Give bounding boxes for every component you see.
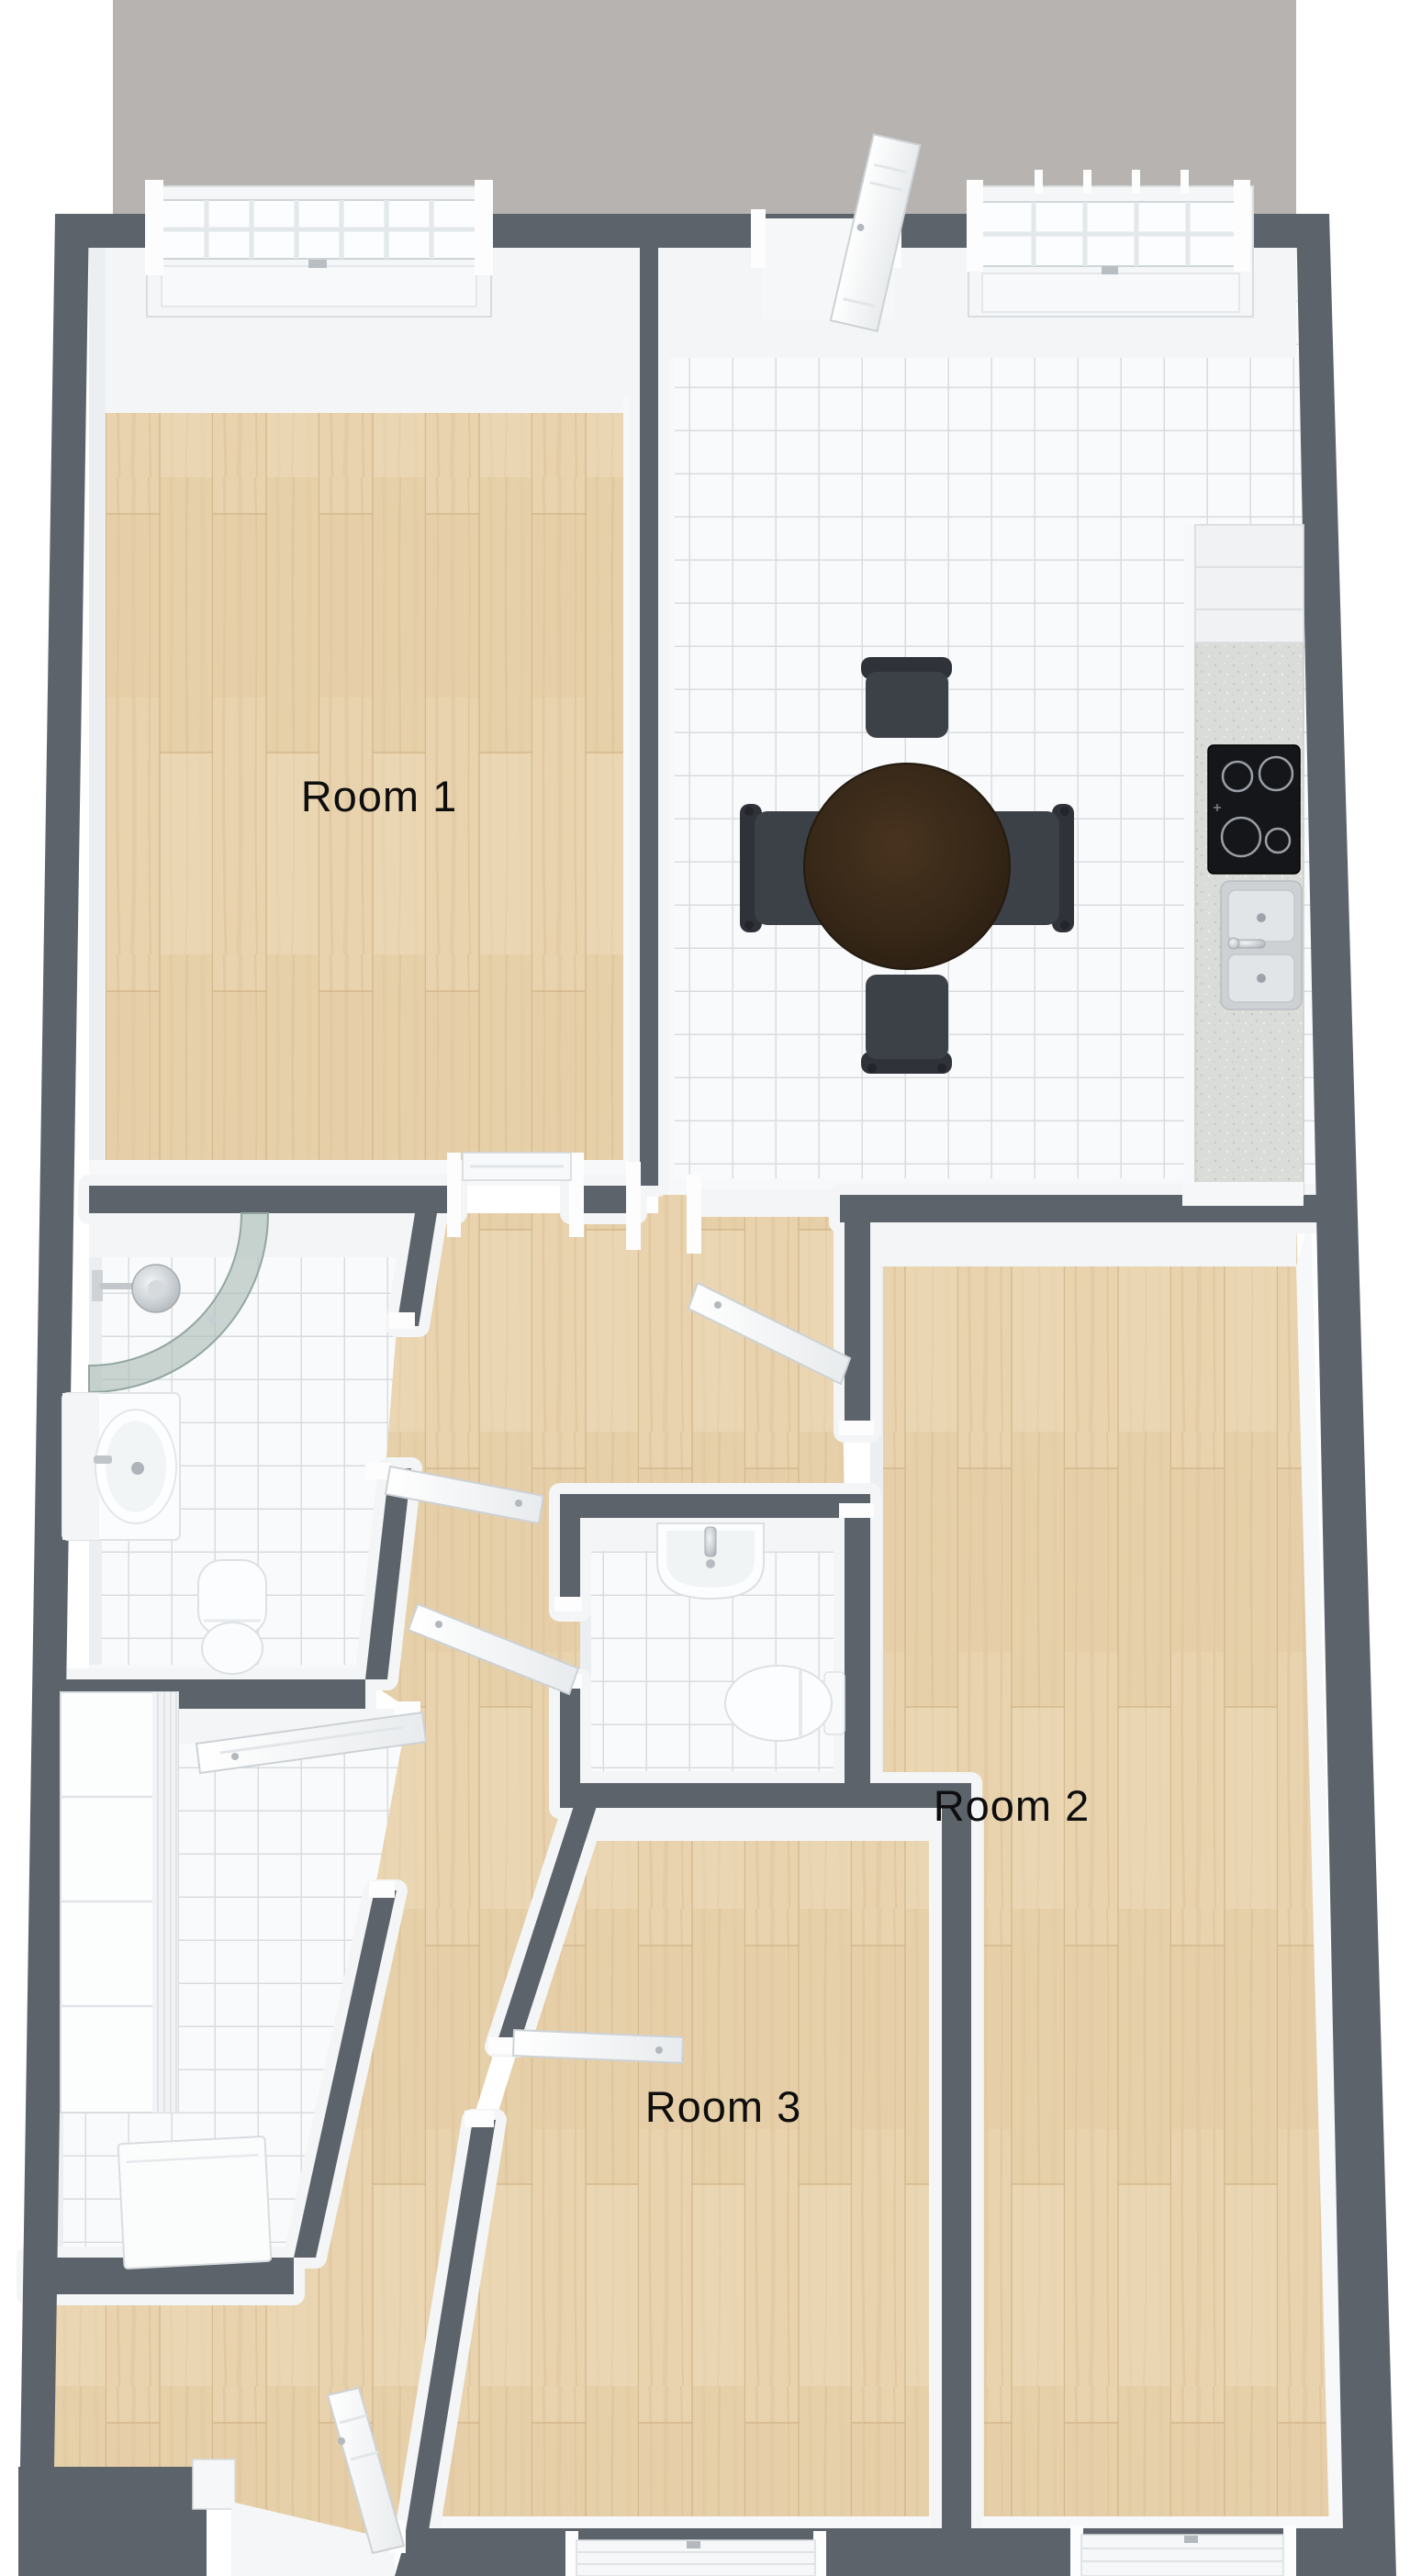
wc-basin-faucet — [705, 1527, 716, 1556]
vanity-faucet — [94, 1455, 112, 1464]
room1-door-left-jamb — [447, 1153, 461, 1237]
wc-toilet-bowl — [725, 1666, 832, 1741]
wc-toilet — [725, 1666, 845, 1741]
room2-label: Room 2 — [934, 1781, 1091, 1830]
room2-window-right-post — [1283, 2526, 1296, 2576]
kitchen-window-right-post — [1234, 180, 1250, 272]
toilet-bowl-front — [202, 1623, 263, 1674]
room2-door-bottom-jamb — [839, 1503, 874, 1518]
sink-faucet-base — [1228, 938, 1239, 949]
counter-appliance-top — [1195, 525, 1304, 642]
kitchen-window-left-post — [967, 180, 983, 272]
wc-north-wall — [560, 1494, 870, 1518]
wardrobe-door-slats — [152, 1692, 178, 2113]
wc-west-wall-lower — [560, 1679, 580, 1783]
room3-door-handle — [655, 2046, 663, 2054]
kitchen-hall-threshold — [701, 1189, 840, 1217]
kitchen-counter — [1182, 525, 1304, 1206]
divider-room1-kitchen — [640, 248, 658, 1186]
entrance-door-frame — [193, 2459, 235, 2509]
wc-west-wall-upper — [560, 1518, 580, 1611]
wc-basin-drain — [706, 1559, 715, 1568]
chair-top — [861, 657, 952, 738]
hall-top-wall — [89, 1186, 456, 1213]
room3-window-handle — [687, 2541, 700, 2548]
wc-basin — [657, 1523, 764, 1599]
room1-label: Room 1 — [301, 772, 458, 820]
kitchen-window-sill — [982, 273, 1239, 312]
room2-room3-divider — [942, 1806, 971, 2533]
room3-label: Room 3 — [645, 2082, 802, 2131]
counter-end-panel — [1182, 1182, 1304, 1206]
sink-drain-bottom — [1257, 974, 1266, 983]
room2-west-wall-lower — [845, 1510, 870, 1783]
balcony-door-left-jamb — [751, 209, 766, 268]
vanity-drain — [131, 1462, 144, 1475]
room2-window-handle — [1184, 2536, 1198, 2543]
floor-plan-svg: Room 1 Room 2 Room 3 — [0, 0, 1410, 2576]
entrance-door-handle — [338, 2437, 345, 2445]
room2-door-handle — [714, 1301, 722, 1309]
wardrobe — [61, 1692, 178, 2113]
room2-window-frame — [1081, 2535, 1283, 2576]
closet-door-handle — [231, 1753, 239, 1760]
shower-glass-handle — [207, 1315, 217, 1324]
wc-door-top-jamb — [554, 1597, 582, 1611]
floor-plan: Room 1 Room 2 Room 3 — [0, 0, 1410, 2576]
wc-south-wall — [560, 1783, 971, 1808]
room1-west-wall-face — [89, 248, 106, 1186]
room3-door-bottom-jamb — [464, 2111, 494, 2127]
entrance-corner-wall — [18, 2467, 207, 2576]
closet-cabinet — [118, 2136, 272, 2269]
room1-window-left-post — [145, 180, 163, 275]
room2-west-wall-upper — [845, 1213, 870, 1432]
vanity-shelf — [62, 1393, 99, 1540]
sink-drain-top — [1257, 913, 1266, 922]
bathroom-door-handle — [515, 1500, 522, 1507]
room1-window-sill — [162, 266, 476, 307]
kitchen-window-handle — [1102, 266, 1118, 274]
cooktop — [1208, 745, 1300, 874]
bathroom-toilet — [198, 1560, 266, 1674]
wc-door-handle — [435, 1621, 442, 1628]
room2-door-top-jamb — [839, 1421, 874, 1435]
bathroom-door-top-jamb — [389, 1312, 415, 1329]
closet-door-bottom-jamb — [369, 1881, 395, 1898]
kitchen-window — [967, 170, 1253, 317]
bathroom-door-bottom-jamb — [365, 1463, 391, 1479]
kitchen-sink — [1221, 881, 1302, 1009]
dining-table — [804, 764, 1010, 969]
bathroom-vanity — [62, 1393, 180, 1540]
chair-bottom — [861, 975, 952, 1074]
room1-window — [145, 180, 493, 317]
room1-window-right-post — [475, 180, 493, 275]
shower-head-center — [148, 1280, 164, 1297]
room1-window-handle — [308, 260, 327, 268]
